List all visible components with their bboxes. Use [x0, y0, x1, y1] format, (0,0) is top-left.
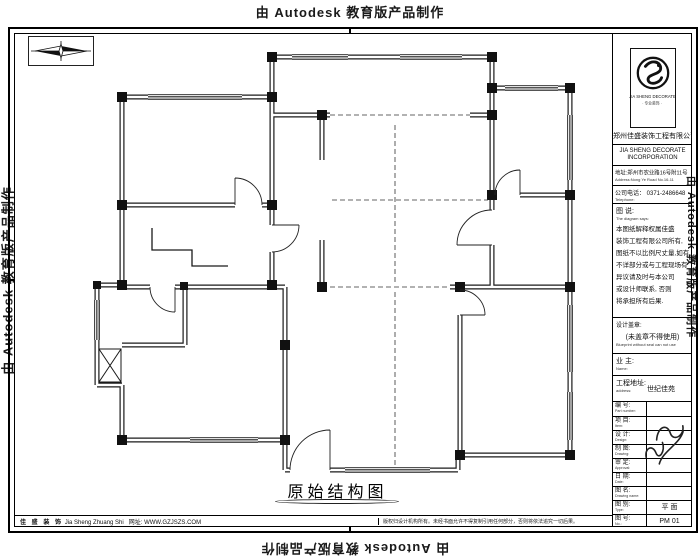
diagram-label-en: The diagram says: [616, 217, 674, 222]
footer-copyright: 版权归设计机构所有。未经书面允许不得复制引用任何部分，否则将依法追究一切后果。 [378, 518, 612, 525]
logo-caption-2: · 专业装饰 · [643, 101, 663, 106]
address-en: Address:Nong Ye Road No.16-11 [615, 178, 675, 183]
row-drawing-type: 图 别:Type: 平 面 [613, 500, 692, 514]
site-section: 工程地址: address: 世纪佳苑 [613, 376, 692, 402]
row-drawing-number: 图 号:No.: PM 01 [613, 514, 692, 527]
notice-line: 装饰工程有限公司所有, [616, 236, 689, 248]
seal-note-en: Blueprint without seal can not use [616, 343, 674, 348]
row-label-en: Drawing name: [615, 495, 636, 499]
seal-note-cn: (未盖章不得使用) [616, 332, 689, 342]
door-swings [150, 170, 520, 470]
row-label-en: Type: [615, 509, 636, 513]
company-name-en: JIA SHENG DECORATE INCORPORATION [613, 144, 692, 166]
row-label-en: Item: [615, 425, 636, 429]
address-section: 地址:郑州市农业路16号附11号 Address:Nong Ye Road No… [613, 166, 692, 186]
row-value: 平 面 [647, 501, 692, 514]
window-lines [94, 54, 572, 472]
diagram-notice: 本图纸解释权属佳盛 装饰工程有限公司所有, 图纸不以比例尺丈量,如有 不详部分或… [616, 224, 689, 308]
drawing-title-underline [275, 499, 399, 504]
site-value: 世纪佳苑 [647, 384, 675, 394]
address-cn: 地址:郑州市农业路16号附11号 [615, 168, 683, 176]
floor-plan [0, 0, 700, 560]
owner-section: 业 主: Name: [613, 354, 692, 376]
footer-website: 网址: WWW.GZJSZS.COM [129, 520, 201, 526]
row-label-en: Approval: [615, 467, 636, 471]
row-label-en: Part number: [615, 410, 636, 414]
notice-line: 将承担所有后果. [616, 296, 689, 308]
notice-line: 不详部分或与工程现场有 [616, 260, 689, 272]
diagram-label-cn: 图 说: [616, 206, 689, 216]
design-seal-section: 设计盖章: (未盖章不得使用) Blueprint without seal c… [613, 318, 692, 354]
diagram-notes-section: 图 说: The diagram says: 本图纸解释权属佳盛 装饰工程有限公… [613, 204, 692, 318]
walls [97, 57, 570, 470]
niche-zigzag-wall [152, 228, 228, 266]
row-label-en: No.: [615, 523, 636, 527]
row-label-en: Date: [615, 481, 636, 485]
company-en-line1: JIA SHENG DECORATE [613, 148, 692, 155]
approval-signature [638, 408, 694, 478]
row-drawing-name: 图 名:Drawing name: [613, 486, 692, 500]
row-value [647, 487, 692, 500]
row-value: PM 01 [647, 515, 692, 527]
owner-label-en: Name: [616, 367, 674, 372]
telephone-en: Telephone: [615, 198, 675, 203]
notice-line: 本图纸解释权属佳盛 [616, 224, 689, 236]
company-name-cn: 郑州佳盛装饰工程有限公司 [613, 130, 692, 144]
company-en-line2: INCORPORATION [613, 155, 692, 162]
telephone-section: 公司电话： 0371-2486648 Telephone: [613, 186, 692, 204]
footer-brand-cn: 佳 盛 装 饰 [20, 520, 63, 526]
company-logo-icon [634, 53, 672, 93]
column-blocks [93, 52, 575, 460]
footer-strip: 佳 盛 装 饰 Jia Sheng Zhuang Shi 网址: WWW.GZJ… [14, 515, 612, 527]
footer-brand-pinyin: Jia Sheng Zhuang Shi [65, 520, 124, 526]
footer-company: 佳 盛 装 饰 Jia Sheng Zhuang Shi 网址: WWW.GZJ… [14, 517, 378, 526]
row-label-en: Design: [615, 439, 636, 443]
notice-line: 或设计师联系, 否则 [616, 284, 689, 296]
row-label-en: Drawing: [615, 453, 636, 457]
logo-caption-1: JIA SHENG DECORATE [629, 94, 676, 99]
cad-sheet: { "watermark": { "text": "由 Autodesk 教育版… [0, 0, 700, 560]
telephone-cn: 公司电话： 0371-2486648 [615, 188, 690, 197]
shaft-x-marker [99, 349, 121, 382]
logo-box: JIA SHENG DECORATE · 专业装饰 · [630, 48, 676, 128]
seal-label: 设计盖章: [616, 320, 689, 329]
notice-line: 异议请及时与本公司 [616, 272, 689, 284]
notice-line: 图纸不以比例尺丈量,如有 [616, 248, 689, 260]
owner-label-cn: 业 主: [616, 356, 689, 366]
logo-section: JIA SHENG DECORATE · 专业装饰 · [613, 33, 692, 130]
